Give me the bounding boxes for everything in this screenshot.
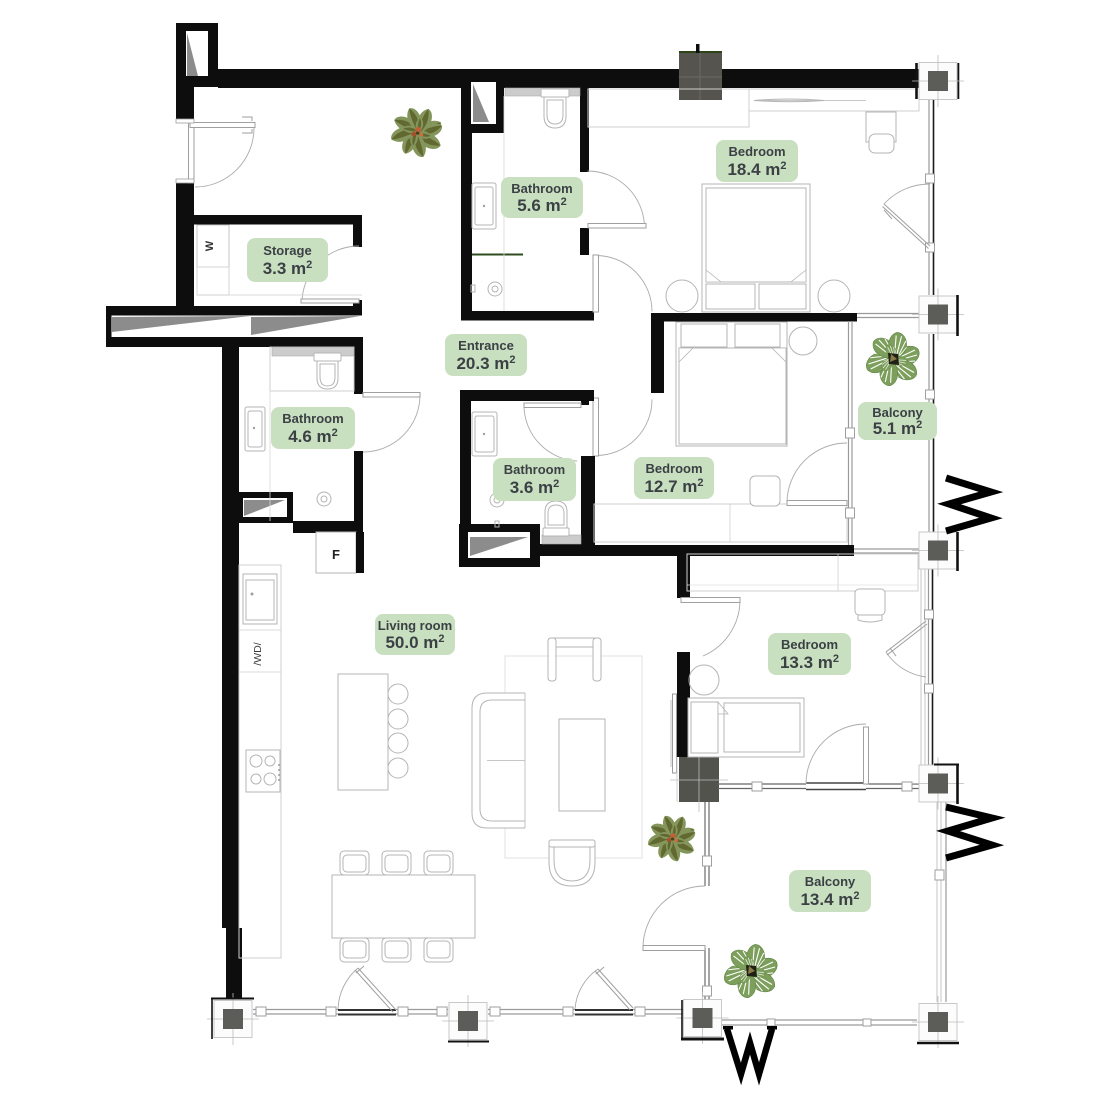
svg-text:20.3 m2: 20.3 m2	[456, 354, 515, 373]
svg-text:3.6 m2: 3.6 m2	[510, 478, 560, 497]
svg-text:/WD/: /WD/	[252, 642, 264, 665]
svg-text:3.3 m2: 3.3 m2	[263, 259, 313, 278]
svg-text:13.3 m2: 13.3 m2	[780, 653, 839, 672]
svg-text:Bathroom: Bathroom	[504, 462, 565, 477]
svg-text:Bedroom: Bedroom	[728, 144, 785, 159]
svg-text:Balcony: Balcony	[872, 405, 923, 420]
svg-text:Bathroom: Bathroom	[511, 181, 572, 196]
svg-text:5.1 m2: 5.1 m2	[873, 419, 923, 438]
svg-text:50.0 m2: 50.0 m2	[385, 633, 444, 652]
svg-text:4.6 m2: 4.6 m2	[288, 427, 338, 446]
svg-text:Bedroom: Bedroom	[645, 461, 702, 476]
svg-text:Entrance: Entrance	[458, 338, 514, 353]
svg-text:13.4 m2: 13.4 m2	[800, 890, 859, 909]
svg-text:Bathroom: Bathroom	[282, 411, 343, 426]
svg-text:18.4 m2: 18.4 m2	[727, 160, 786, 179]
svg-text:5.6 m2: 5.6 m2	[517, 196, 567, 215]
svg-text:Balcony: Balcony	[805, 874, 856, 889]
svg-text:Storage: Storage	[263, 243, 311, 258]
svg-text:Bedroom: Bedroom	[781, 637, 838, 652]
svg-text:Living room: Living room	[378, 618, 452, 633]
svg-text:W: W	[204, 240, 216, 251]
svg-text:F: F	[332, 547, 340, 562]
svg-text:12.7 m2: 12.7 m2	[644, 477, 703, 496]
